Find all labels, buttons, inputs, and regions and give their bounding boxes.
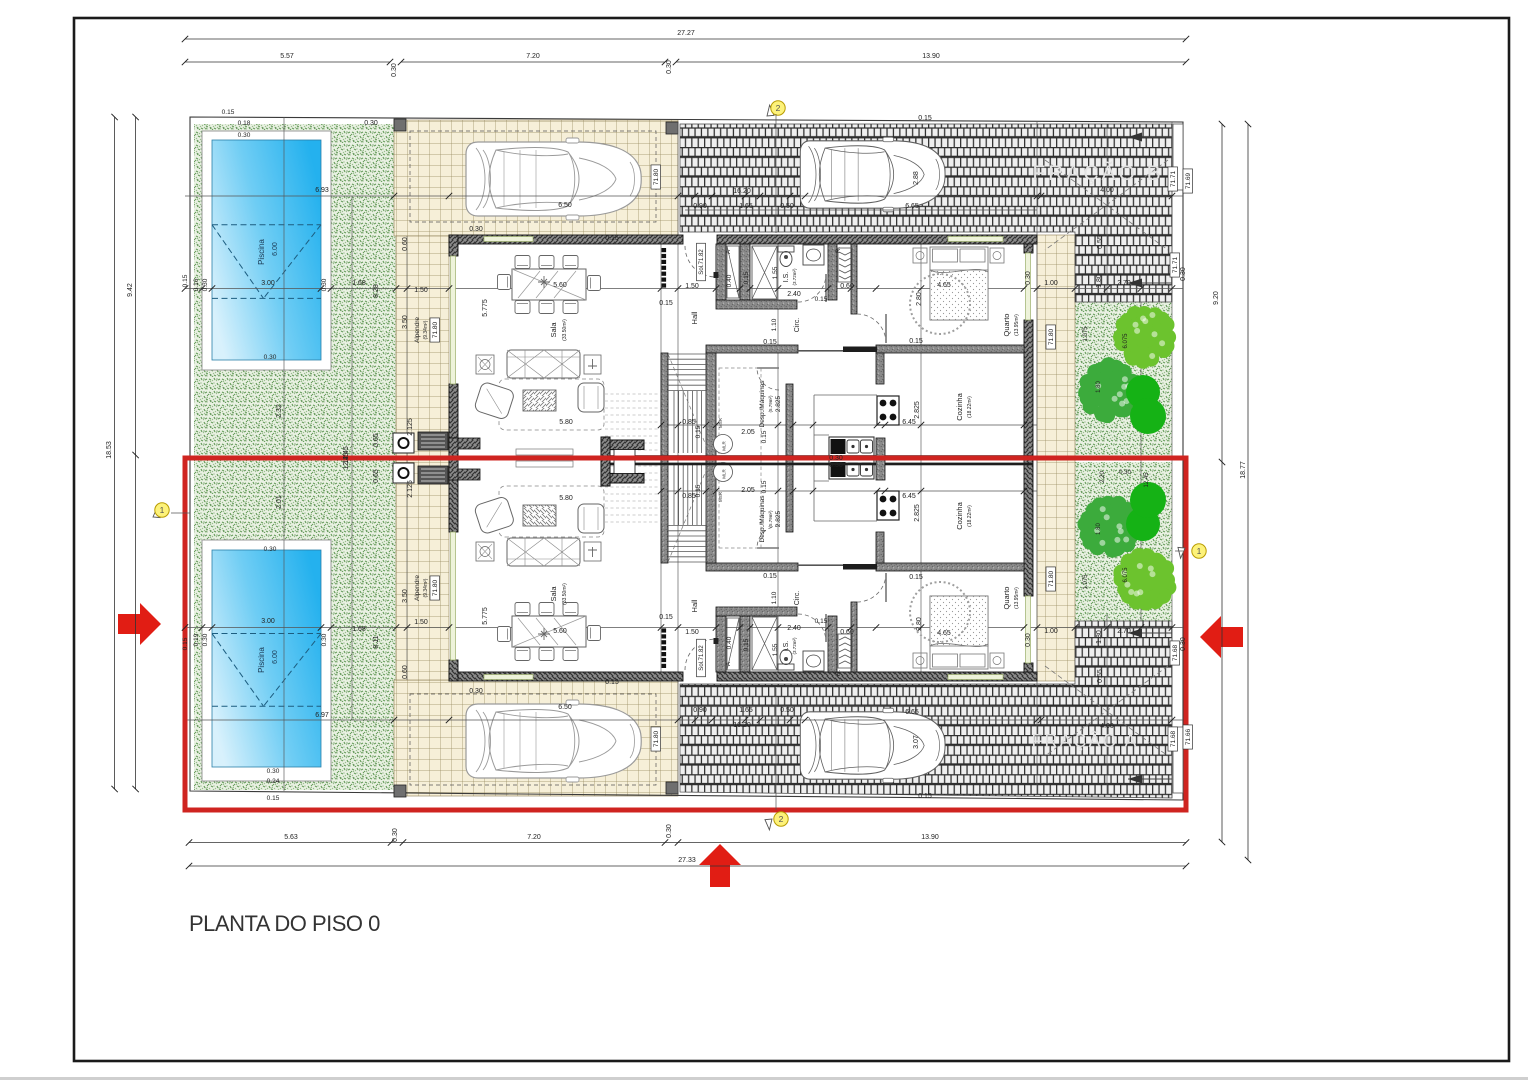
- svg-text:Quarto: Quarto: [1002, 314, 1011, 337]
- svg-text:1.075: 1.075: [1083, 574, 1089, 590]
- svg-text:1: 1: [160, 505, 165, 515]
- svg-text:(5.79m²): (5.79m²): [768, 510, 773, 528]
- svg-text:0.15: 0.15: [659, 300, 673, 307]
- svg-text:1.55: 1.55: [772, 643, 779, 656]
- svg-text:0.30: 0.30: [202, 278, 209, 291]
- svg-text:71.71: 71.71: [1170, 170, 1177, 187]
- svg-text:0.30: 0.30: [829, 462, 843, 469]
- svg-text:71.80: 71.80: [653, 730, 660, 747]
- svg-text:2.32: 2.32: [276, 404, 283, 418]
- svg-text:5.57: 5.57: [280, 53, 294, 60]
- svg-text:12.45: 12.45: [343, 452, 350, 470]
- svg-text:12.45: 12.45: [1144, 472, 1150, 488]
- svg-text:6.50: 6.50: [558, 202, 572, 209]
- svg-text:(9.34m²): (9.34m²): [423, 578, 429, 597]
- svg-text:0.30: 0.30: [469, 688, 483, 695]
- svg-text:1.65: 1.65: [739, 203, 753, 210]
- svg-text:0.15: 0.15: [182, 637, 189, 650]
- svg-text:2.70: 2.70: [1117, 628, 1131, 635]
- svg-text:1.10: 1.10: [771, 591, 778, 604]
- svg-text:1.00: 1.00: [1044, 280, 1058, 287]
- svg-text:18.53: 18.53: [106, 441, 113, 459]
- svg-text:8.28: 8.28: [373, 284, 380, 298]
- svg-text:(3.72m²): (3.72m²): [792, 268, 797, 286]
- svg-text:5.775: 5.775: [482, 299, 489, 317]
- svg-text:7.20: 7.20: [527, 834, 541, 841]
- svg-text:2.80: 2.80: [916, 292, 923, 306]
- svg-text:0.15: 0.15: [659, 614, 673, 621]
- svg-text:0.15: 0.15: [918, 115, 932, 122]
- svg-text:1.80: 1.80: [1096, 274, 1103, 288]
- svg-text:Hall: Hall: [690, 599, 699, 612]
- svg-text:Alpendre: Alpendre: [414, 317, 421, 343]
- svg-text:5.775: 5.775: [482, 607, 489, 625]
- svg-text:1.80: 1.80: [1096, 523, 1102, 535]
- svg-text:0.30: 0.30: [364, 120, 378, 127]
- svg-text:2.825: 2.825: [775, 510, 782, 527]
- svg-text:0.15: 0.15: [909, 574, 923, 581]
- svg-text:0.55: 0.55: [1097, 235, 1104, 249]
- svg-text:1.68: 1.68: [352, 280, 366, 287]
- svg-text:FRAÇÃO B: FRAÇÃO B: [1032, 161, 1163, 185]
- svg-text:Sala: Sala: [549, 586, 558, 602]
- svg-text:71.80: 71.80: [432, 579, 439, 596]
- svg-text:1.00: 1.00: [1044, 628, 1058, 635]
- svg-text:6.075: 6.075: [1123, 567, 1129, 583]
- svg-text:0.15: 0.15: [743, 271, 750, 284]
- svg-text:6.65: 6.65: [905, 203, 919, 210]
- svg-text:5.60: 5.60: [553, 282, 567, 289]
- svg-text:(13.95m²): (13.95m²): [1014, 314, 1020, 336]
- svg-text:9.42: 9.42: [127, 283, 134, 297]
- svg-text:Desp./Máquinas: Desp./Máquinas: [759, 495, 766, 543]
- svg-text:1.55: 1.55: [772, 266, 779, 279]
- svg-text:1.50: 1.50: [414, 287, 428, 294]
- svg-text:0.30: 0.30: [666, 60, 673, 74]
- svg-text:0.15: 0.15: [605, 235, 619, 242]
- svg-text:0.30: 0.30: [1180, 637, 1187, 651]
- svg-text:0.18: 0.18: [238, 120, 251, 127]
- svg-text:3.50: 3.50: [402, 315, 409, 329]
- svg-text:0.85: 0.85: [682, 419, 696, 426]
- svg-text:2.20: 2.20: [1100, 471, 1106, 483]
- svg-text:0.30: 0.30: [829, 455, 843, 462]
- svg-text:13.90: 13.90: [922, 53, 940, 60]
- svg-text:Circ.: Circ.: [794, 318, 801, 332]
- svg-text:0.30: 0.30: [666, 824, 673, 838]
- svg-text:0.19: 0.19: [193, 633, 200, 646]
- svg-text:0.30: 0.30: [392, 828, 399, 842]
- svg-text:5.60: 5.60: [553, 628, 567, 635]
- svg-text:0.15: 0.15: [761, 480, 768, 493]
- svg-text:8.11: 8.11: [373, 635, 380, 648]
- svg-text:A: A: [726, 250, 732, 254]
- svg-text:3.07: 3.07: [913, 735, 920, 749]
- svg-text:1.68: 1.68: [352, 626, 366, 633]
- svg-text:5.63: 5.63: [284, 834, 298, 841]
- svg-text:1.50: 1.50: [414, 619, 428, 626]
- svg-text:0.15: 0.15: [815, 618, 828, 625]
- svg-text:0.50: 0.50: [780, 203, 794, 210]
- svg-text:Circ.: Circ.: [794, 591, 801, 605]
- svg-text:0.30: 0.30: [321, 278, 328, 291]
- svg-text:Cozinha: Cozinha: [955, 392, 964, 420]
- svg-text:0.90: 0.90: [693, 203, 707, 210]
- svg-text:0.15: 0.15: [909, 338, 923, 345]
- svg-text:9.20: 9.20: [1213, 291, 1220, 305]
- svg-text:Piscina: Piscina: [257, 239, 266, 265]
- svg-text:7.20: 7.20: [526, 53, 540, 60]
- svg-text:6.65: 6.65: [905, 709, 919, 716]
- svg-text:6.45: 6.45: [902, 419, 916, 426]
- svg-text:(5.79m²): (5.79m²): [768, 395, 773, 413]
- svg-text:MSR: MSR: [718, 491, 723, 502]
- svg-text:0.30: 0.30: [1025, 633, 1032, 647]
- svg-text:6.45: 6.45: [902, 493, 916, 500]
- svg-text:0.90: 0.90: [693, 707, 707, 714]
- svg-text:13.90: 13.90: [921, 834, 939, 841]
- svg-text:0.55: 0.55: [1097, 669, 1104, 683]
- svg-text:16.20: 16.20: [733, 722, 751, 729]
- svg-text:18.77: 18.77: [1240, 461, 1247, 479]
- svg-text:2.88: 2.88: [913, 171, 920, 185]
- svg-text:0.40: 0.40: [726, 636, 733, 649]
- svg-text:71.68: 71.68: [1172, 644, 1179, 661]
- svg-text:0.40: 0.40: [726, 274, 733, 287]
- svg-text:71.80: 71.80: [653, 168, 660, 185]
- svg-text:0.60: 0.60: [840, 629, 854, 636]
- svg-text:0.50: 0.50: [780, 707, 794, 714]
- svg-text:0.30: 0.30: [1119, 470, 1131, 476]
- svg-text:0.60: 0.60: [402, 237, 409, 251]
- svg-text:3.00: 3.00: [261, 618, 275, 625]
- svg-text:0.15: 0.15: [763, 339, 777, 346]
- svg-text:2.40: 2.40: [787, 625, 801, 632]
- svg-text:2.70: 2.70: [1117, 280, 1131, 287]
- svg-text:1.65: 1.65: [739, 707, 753, 714]
- svg-text:2: 2: [779, 814, 784, 824]
- svg-text:R.: R.: [836, 670, 842, 676]
- svg-text:FRAÇÃO A: FRAÇÃO A: [1031, 730, 1138, 751]
- svg-text:0.15: 0.15: [605, 679, 619, 686]
- svg-text:5.80: 5.80: [559, 419, 573, 426]
- svg-text:0.60: 0.60: [840, 283, 854, 290]
- svg-text:0.16: 0.16: [193, 278, 200, 291]
- svg-text:(33.50m²): (33.50m²): [562, 583, 568, 605]
- svg-text:1.80: 1.80: [1096, 630, 1103, 644]
- svg-text:I.S.: I.S.: [783, 272, 790, 283]
- svg-text:6.93: 6.93: [315, 187, 329, 194]
- svg-text:0.30: 0.30: [238, 132, 251, 139]
- svg-text:PLANTA DO PISO 0: PLANTA DO PISO 0: [189, 911, 380, 936]
- svg-text:3.50: 3.50: [402, 589, 409, 603]
- svg-text:I.S.: I.S.: [783, 641, 790, 652]
- svg-text:(13.95m²): (13.95m²): [1014, 587, 1020, 609]
- svg-text:0.15: 0.15: [222, 109, 235, 116]
- svg-text:0.65: 0.65: [373, 433, 380, 447]
- svg-text:0.15: 0.15: [815, 296, 828, 303]
- svg-text:A: A: [726, 662, 732, 666]
- svg-text:0.30: 0.30: [267, 768, 280, 775]
- svg-text:2: 2: [776, 103, 781, 113]
- svg-text:(33.50m²): (33.50m²): [562, 319, 568, 341]
- svg-text:0.15: 0.15: [763, 573, 777, 580]
- svg-text:6.075: 6.075: [1123, 333, 1129, 349]
- svg-text:R.: R.: [836, 247, 842, 253]
- svg-text:0.85: 0.85: [682, 493, 696, 500]
- svg-text:6.97: 6.97: [315, 712, 329, 719]
- svg-text:2.125: 2.125: [407, 480, 414, 498]
- svg-text:2.825: 2.825: [914, 401, 921, 419]
- svg-text:1.50: 1.50: [685, 629, 699, 636]
- svg-text:0.15: 0.15: [695, 484, 702, 497]
- svg-text:6.00: 6.00: [272, 242, 279, 256]
- svg-text:6.50: 6.50: [558, 704, 572, 711]
- svg-text:Quarto: Quarto: [1002, 587, 1011, 610]
- svg-text:Piscina: Piscina: [257, 647, 266, 673]
- svg-text:27.27: 27.27: [677, 30, 695, 37]
- svg-text:27.33: 27.33: [678, 857, 696, 864]
- svg-text:1.10: 1.10: [771, 318, 778, 331]
- svg-text:0.30: 0.30: [1180, 267, 1187, 281]
- svg-text:1.075: 1.075: [1083, 326, 1089, 342]
- svg-text:0.30: 0.30: [264, 546, 277, 553]
- svg-text:71.66: 71.66: [1185, 728, 1192, 745]
- svg-text:4.00: 4.00: [1100, 187, 1114, 194]
- svg-text:Sala: Sala: [549, 322, 558, 338]
- svg-text:71.80: 71.80: [1048, 328, 1055, 345]
- svg-text:MLR: MLR: [722, 441, 727, 451]
- svg-text:2.825: 2.825: [914, 504, 921, 522]
- svg-text:1.50: 1.50: [685, 283, 699, 290]
- svg-text:(9.34m²): (9.34m²): [423, 320, 429, 339]
- svg-text:(3.72m²): (3.72m²): [792, 637, 797, 655]
- svg-text:Alpendre: Alpendre: [414, 575, 421, 601]
- svg-text:0.15: 0.15: [182, 274, 189, 287]
- svg-text:2.40: 2.40: [787, 291, 801, 298]
- svg-text:71.69: 71.69: [1185, 172, 1192, 189]
- svg-text:1: 1: [1197, 546, 1202, 556]
- svg-text:3.00: 3.00: [261, 280, 275, 287]
- svg-text:0.30: 0.30: [321, 633, 328, 646]
- svg-text:Desp./Máquinas: Desp./Máquinas: [759, 380, 766, 428]
- svg-text:Sol.71.82: Sol.71.82: [699, 645, 705, 671]
- svg-text:4.65: 4.65: [937, 630, 951, 637]
- svg-text:0.30: 0.30: [469, 226, 483, 233]
- svg-text:0.15: 0.15: [267, 795, 280, 802]
- svg-text:2.825: 2.825: [775, 395, 782, 412]
- svg-text:2.80: 2.80: [916, 617, 923, 631]
- svg-text:2.05: 2.05: [741, 487, 755, 494]
- svg-text:0.30: 0.30: [202, 633, 209, 646]
- svg-text:Cozinha: Cozinha: [955, 501, 964, 529]
- svg-text:0.15: 0.15: [743, 638, 750, 651]
- svg-text:4.00: 4.00: [1100, 723, 1114, 730]
- svg-text:71.80: 71.80: [432, 321, 439, 338]
- svg-text:16.20: 16.20: [733, 188, 751, 195]
- svg-text:1.80: 1.80: [1096, 381, 1102, 393]
- svg-text:0.30: 0.30: [1025, 271, 1032, 285]
- svg-text:0.30: 0.30: [264, 354, 277, 361]
- svg-text:0.15: 0.15: [695, 425, 702, 438]
- svg-text:Sol.71.82: Sol.71.82: [699, 249, 705, 275]
- svg-text:6.00: 6.00: [272, 650, 279, 664]
- svg-text:0.60: 0.60: [402, 665, 409, 679]
- svg-text:71.68: 71.68: [1170, 730, 1177, 747]
- svg-text:0.65: 0.65: [373, 469, 380, 483]
- svg-text:(18.22m²): (18.22m²): [967, 396, 973, 418]
- svg-text:0.30: 0.30: [391, 63, 398, 77]
- svg-text:71.80: 71.80: [1048, 570, 1055, 587]
- svg-text:2.01: 2.01: [276, 495, 283, 509]
- svg-text:4.65: 4.65: [937, 282, 951, 289]
- svg-text:0.15: 0.15: [761, 430, 768, 443]
- svg-text:0.24: 0.24: [267, 778, 280, 785]
- svg-text:MSR: MSR: [718, 417, 723, 428]
- svg-text:MLR: MLR: [722, 469, 727, 479]
- svg-text:5.80: 5.80: [559, 495, 573, 502]
- svg-text:2.125: 2.125: [407, 418, 414, 436]
- svg-text:Hall: Hall: [690, 311, 699, 324]
- svg-text:0.15: 0.15: [918, 793, 932, 800]
- svg-text:2.05: 2.05: [741, 429, 755, 436]
- svg-text:(18.22m²): (18.22m²): [967, 505, 973, 527]
- svg-text:71.71: 71.71: [1172, 256, 1179, 273]
